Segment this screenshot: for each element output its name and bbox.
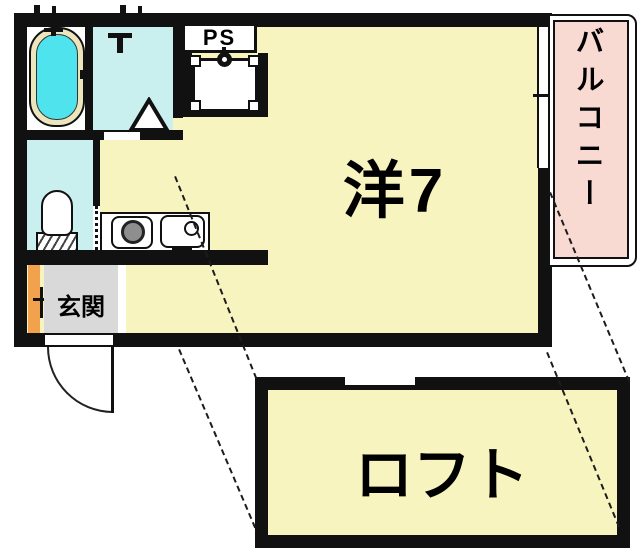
tub-faucet-icon (51, 18, 56, 36)
loft-notch (345, 377, 415, 385)
ps-label: PS (182, 25, 257, 51)
shower-icon (117, 38, 123, 53)
wall-mid (14, 250, 268, 265)
vent-tick-icon (138, 6, 142, 14)
main-room-label: 洋7 (325, 140, 465, 230)
toilet-icon (41, 190, 73, 236)
heater-dial-icon (217, 52, 232, 67)
entrance-door-leaf (111, 347, 114, 413)
entrance-label: 玄関 (44, 287, 118, 322)
heater-corner (189, 100, 201, 112)
wall-left (14, 13, 27, 347)
loft-projection-line (178, 349, 256, 528)
tub-faucet-icon (44, 28, 63, 32)
entrance-door-arc (47, 347, 113, 413)
stove-burner (121, 220, 145, 244)
wall-bottom-main (113, 333, 552, 347)
vent-tick-icon (120, 5, 126, 14)
vent-tick-icon (34, 5, 40, 14)
wall-bath-divider (85, 27, 93, 130)
heater-corner (248, 100, 260, 112)
heater-corner (189, 55, 201, 67)
entrance-door-opening (45, 333, 113, 347)
vent-tick-icon (52, 6, 56, 14)
wall-bottom-left (14, 333, 45, 347)
heater-corner (248, 55, 260, 67)
entrance-step (118, 265, 126, 333)
sink-drain (172, 247, 192, 254)
toilet-door-accordion (95, 206, 98, 250)
wall-top (14, 13, 552, 27)
genkan-mark (40, 287, 43, 318)
bathtub-water (36, 34, 78, 120)
door-triangle-icon (128, 97, 170, 133)
bathtub (29, 27, 85, 127)
floorplan: PS 玄関 バルコニー ロフト 洋7 (0, 0, 640, 559)
wall-toilet-right (93, 140, 100, 206)
balcony-label: バルコニー (576, 26, 608, 256)
loft-label: ロフト (292, 428, 592, 512)
washroom-door-gap (104, 132, 140, 140)
